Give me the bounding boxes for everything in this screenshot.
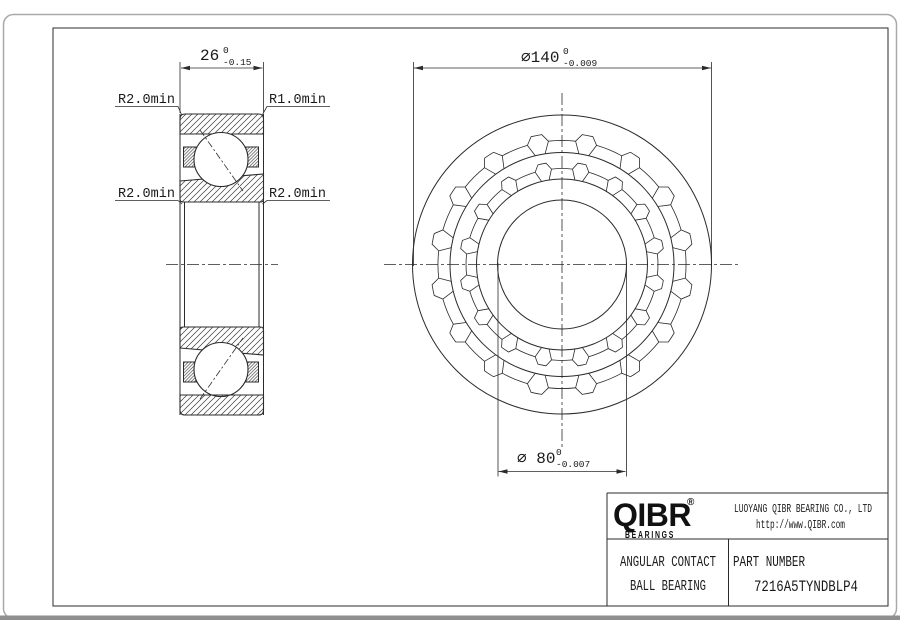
ball-top bbox=[194, 133, 248, 187]
brand-logo-text: QIBR bbox=[613, 497, 691, 533]
drawing-sheet: 26 0 -0.15 R2.0min R1.0min R2.0min R2.0m… bbox=[0, 0, 900, 636]
bore-dimension-value: ⌀ 80 bbox=[517, 450, 555, 468]
radius-callout-mid-right: R2.0min bbox=[269, 187, 326, 202]
bore-arrow-right bbox=[617, 469, 626, 474]
bearing-drawing-canvas: 26 0 -0.15 R2.0min R1.0min R2.0min R2.0m… bbox=[0, 0, 900, 636]
outer-ring-section-bottom bbox=[180, 395, 264, 415]
width-dimension-value: 26 bbox=[200, 47, 219, 65]
part-number-label: PART NUMBER bbox=[733, 555, 805, 571]
front-view: ⌀140 0 -0.009 ⌀ 80 0 -0.007 bbox=[384, 46, 740, 477]
od-arrow-right bbox=[702, 66, 711, 71]
radius-callout-mid-left: R2.0min bbox=[118, 187, 175, 202]
width-dimension: 26 0 -0.15 bbox=[180, 45, 264, 113]
od-dimension-value: ⌀140 bbox=[521, 49, 559, 67]
width-tolerance-upper: 0 bbox=[223, 45, 229, 56]
outer-ring-section-top bbox=[180, 114, 264, 134]
od-tolerance-lower: -0.009 bbox=[563, 58, 598, 69]
width-tolerance-lower: -0.15 bbox=[223, 57, 252, 68]
brand-logo-subtext: BEARINGS bbox=[625, 530, 675, 541]
width-arrow-right bbox=[254, 66, 263, 71]
od-arrow-left bbox=[414, 66, 423, 71]
registered-trademark-icon: ® bbox=[687, 497, 695, 508]
ball-bottom bbox=[194, 343, 248, 397]
width-arrow-left bbox=[181, 66, 190, 71]
bore-tolerance-lower: -0.007 bbox=[556, 459, 590, 470]
od-extension-lines bbox=[414, 62, 712, 266]
cross-section-view: 26 0 -0.15 R2.0min R1.0min R2.0min R2.0m… bbox=[115, 45, 330, 415]
od-dimension: ⌀140 0 -0.009 bbox=[414, 46, 712, 266]
bore-tolerance-upper: 0 bbox=[556, 447, 562, 458]
part-number-value: 7216A5TYNDBLP4 bbox=[754, 578, 858, 596]
radius-callout-top-left: R2.0min bbox=[118, 93, 175, 108]
radius-callout-top-right: R1.0min bbox=[269, 93, 326, 108]
product-type-line1: ANGULAR CONTACT bbox=[620, 555, 716, 571]
title-block: QIBR ® BEARINGS LUOYANG QIBR BEARING CO.… bbox=[607, 493, 888, 606]
width-extension-lines bbox=[180, 62, 264, 113]
company-name: LUOYANG QIBR BEARING CO., LTD bbox=[734, 502, 872, 516]
company-website: http://www.QIBR.com bbox=[756, 518, 845, 532]
bore-arrow-left bbox=[499, 469, 508, 474]
window-bottom-bar bbox=[0, 616, 900, 621]
product-type-line2: BALL BEARING bbox=[630, 579, 706, 595]
od-tolerance-upper: 0 bbox=[563, 46, 569, 57]
